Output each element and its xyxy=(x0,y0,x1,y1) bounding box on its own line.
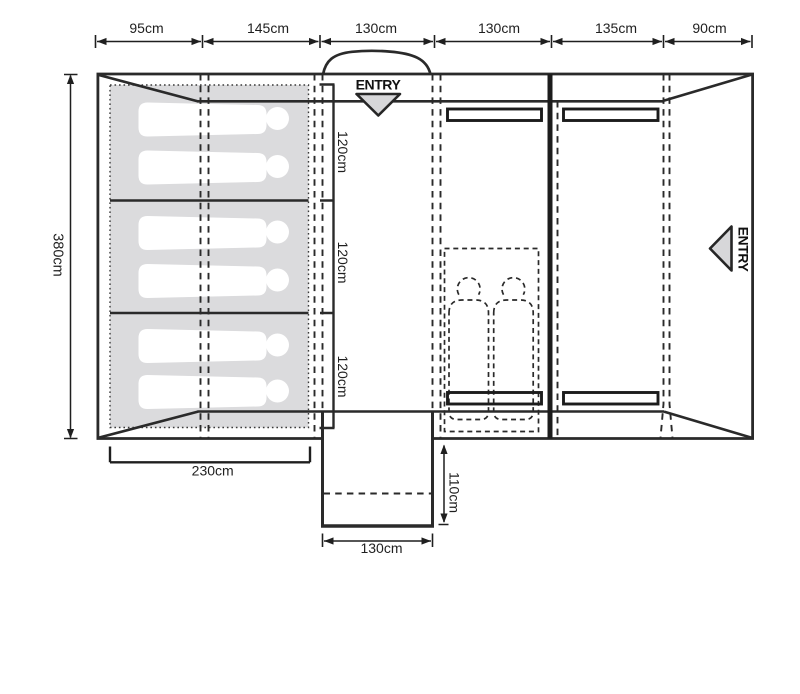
svg-text:ENTRY: ENTRY xyxy=(356,77,402,93)
svg-text:90cm: 90cm xyxy=(692,20,726,36)
svg-text:380cm: 380cm xyxy=(50,233,66,277)
svg-text:110cm: 110cm xyxy=(447,472,463,513)
svg-text:230cm: 230cm xyxy=(192,463,234,479)
svg-text:120cm: 120cm xyxy=(335,131,351,173)
svg-text:120cm: 120cm xyxy=(335,241,351,283)
svg-text:130cm: 130cm xyxy=(360,540,402,556)
svg-text:145cm: 145cm xyxy=(247,20,289,36)
svg-text:120cm: 120cm xyxy=(335,355,351,397)
svg-text:ENTRY: ENTRY xyxy=(736,227,752,273)
svg-text:135cm: 135cm xyxy=(595,20,637,36)
svg-text:130cm: 130cm xyxy=(478,20,520,36)
svg-text:130cm: 130cm xyxy=(355,20,397,36)
svg-text:95cm: 95cm xyxy=(129,20,163,36)
